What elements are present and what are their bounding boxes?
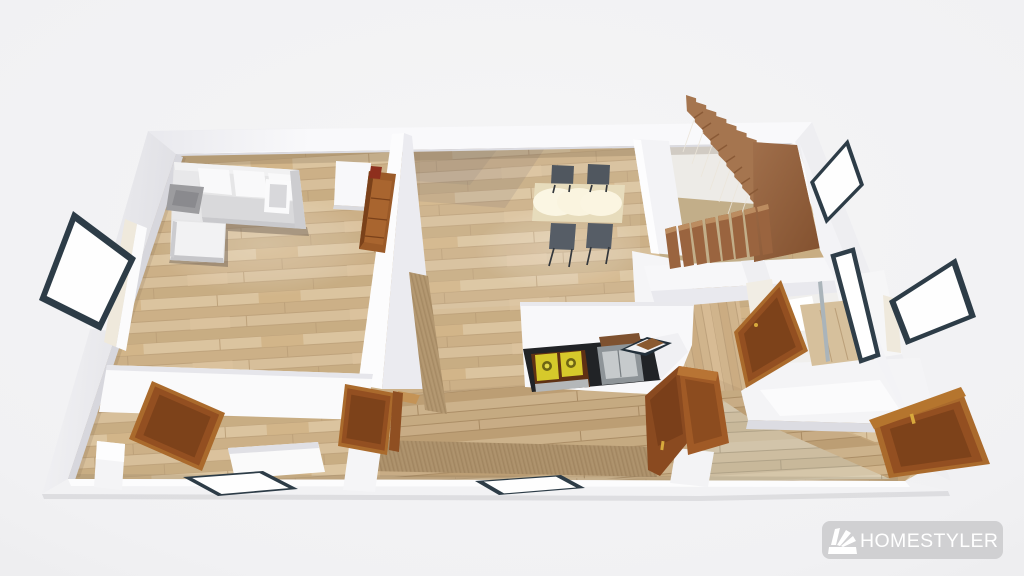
- svg-text:HOMESTYLER: HOMESTYLER: [860, 530, 998, 552]
